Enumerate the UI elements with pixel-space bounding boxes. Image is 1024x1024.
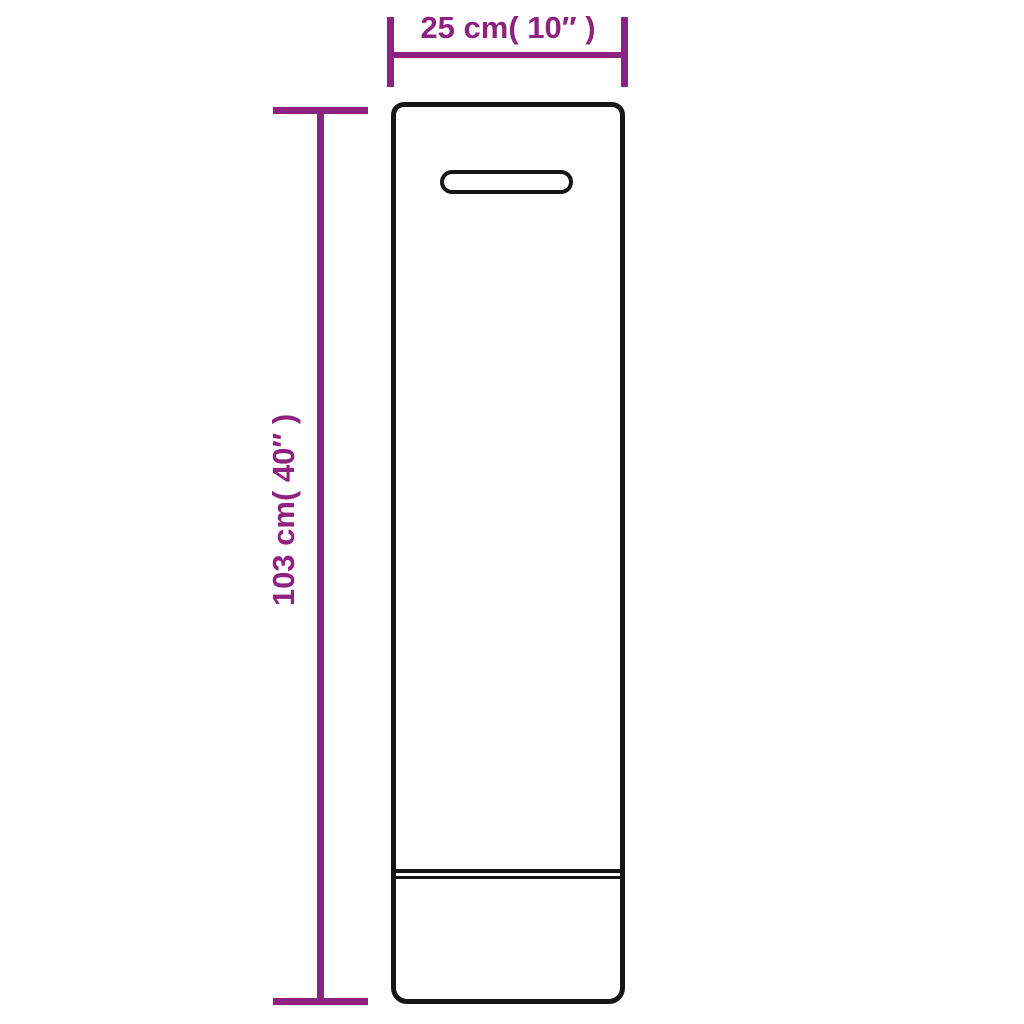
bottom-seam-line-lower (396, 876, 620, 879)
width-dimension-label: 25 cm( 10″ ) (390, 12, 626, 44)
product-outline (391, 102, 625, 1004)
height-dimension-label: 103 cm( 40″ ) (268, 410, 300, 610)
handle-slot (440, 170, 573, 194)
height-dimension-line (317, 108, 324, 1005)
width-dimension-line (390, 52, 626, 58)
width-dimension-left-tick (387, 17, 394, 87)
bottom-seam-line-upper (396, 869, 620, 873)
width-dimension-right-tick (621, 17, 628, 87)
height-dimension-top-tick (273, 107, 368, 114)
dimension-diagram: 25 cm( 10″ ) 103 cm( 40″ ) (0, 0, 1024, 1024)
height-dimension-bottom-tick (273, 998, 368, 1005)
